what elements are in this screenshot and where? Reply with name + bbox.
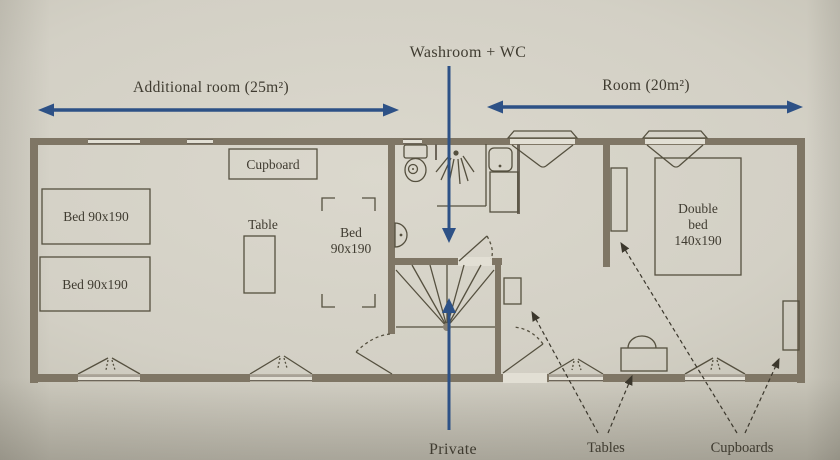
tilt-window-icon xyxy=(685,358,745,382)
tilt-window-icon xyxy=(549,359,603,382)
door-opening-entrance xyxy=(503,373,547,383)
wall-left xyxy=(30,138,38,383)
small-table xyxy=(504,278,521,304)
floor-plan-photo: Bed 90x190 Bed 90x190 Cupboard Table Bed… xyxy=(0,0,840,460)
bed-center-label-1: Bed xyxy=(340,225,362,240)
cupboards-arrow-2 xyxy=(745,359,779,433)
windows-top xyxy=(88,131,707,167)
walls xyxy=(30,138,805,383)
wall-leftroom-divider xyxy=(388,144,395,334)
table-with-chair xyxy=(621,336,667,371)
toilet-icon xyxy=(404,145,427,182)
blue-annotations: Washroom + WC Additional room (25m²) Roo… xyxy=(38,44,803,458)
double-bed-label-3: 140x190 xyxy=(674,233,722,248)
sink-icon xyxy=(489,148,518,212)
cupboards-arrow-1 xyxy=(621,243,737,433)
left-room: Bed 90x190 Bed 90x190 Cupboard Table Bed… xyxy=(40,149,375,311)
table-left xyxy=(244,236,275,293)
window-icon xyxy=(403,139,422,144)
door-opening-washroom xyxy=(458,257,492,266)
wall-cupboard xyxy=(783,301,799,350)
door-swing-icon xyxy=(356,334,392,374)
tables-arrow-2 xyxy=(608,376,632,433)
additional-room-label: Additional room (25m²) xyxy=(133,79,289,96)
tilt-window-icon xyxy=(250,356,312,382)
room-label: Room (20m²) xyxy=(602,77,690,94)
staircase-icon xyxy=(396,265,495,331)
bed-single-2-label: Bed 90x190 xyxy=(62,277,128,292)
cupboard-box-label: Cupboard xyxy=(246,157,299,172)
right-room: Double bed 140x190 xyxy=(504,158,799,371)
washroom-label: Washroom + WC xyxy=(410,44,527,61)
tables-arrow-1 xyxy=(532,312,598,433)
wall-right xyxy=(797,138,805,383)
washroom-fixtures xyxy=(395,144,518,247)
window-icon xyxy=(187,139,213,144)
tilt-window-icon xyxy=(78,358,140,382)
table-left-label: Table xyxy=(248,217,278,232)
wall-basin-icon xyxy=(395,223,407,247)
tall-cupboard xyxy=(611,168,627,231)
wall-stairs-right xyxy=(495,265,501,376)
floor-plan-drawing: Bed 90x190 Bed 90x190 Cupboard Table Bed… xyxy=(0,0,840,460)
shower-icon xyxy=(436,144,486,206)
private-label: Private xyxy=(429,441,477,458)
tables-label: Tables xyxy=(587,440,625,456)
bed-single-1-label: Bed 90x190 xyxy=(63,209,129,224)
tilt-window-icon xyxy=(643,131,707,167)
room-span-arrow-icon xyxy=(487,101,803,114)
door-swing-icon xyxy=(503,327,543,373)
cupboards-label: Cupboards xyxy=(711,440,774,456)
window-icon xyxy=(88,139,140,144)
wall-rightroom-divider xyxy=(603,144,610,267)
additional-room-span-arrow-icon xyxy=(38,104,399,117)
double-bed-label-2: bed xyxy=(688,217,708,232)
bed-center-label-2: 90x190 xyxy=(331,241,372,256)
double-bed-label-1: Double xyxy=(678,201,718,216)
